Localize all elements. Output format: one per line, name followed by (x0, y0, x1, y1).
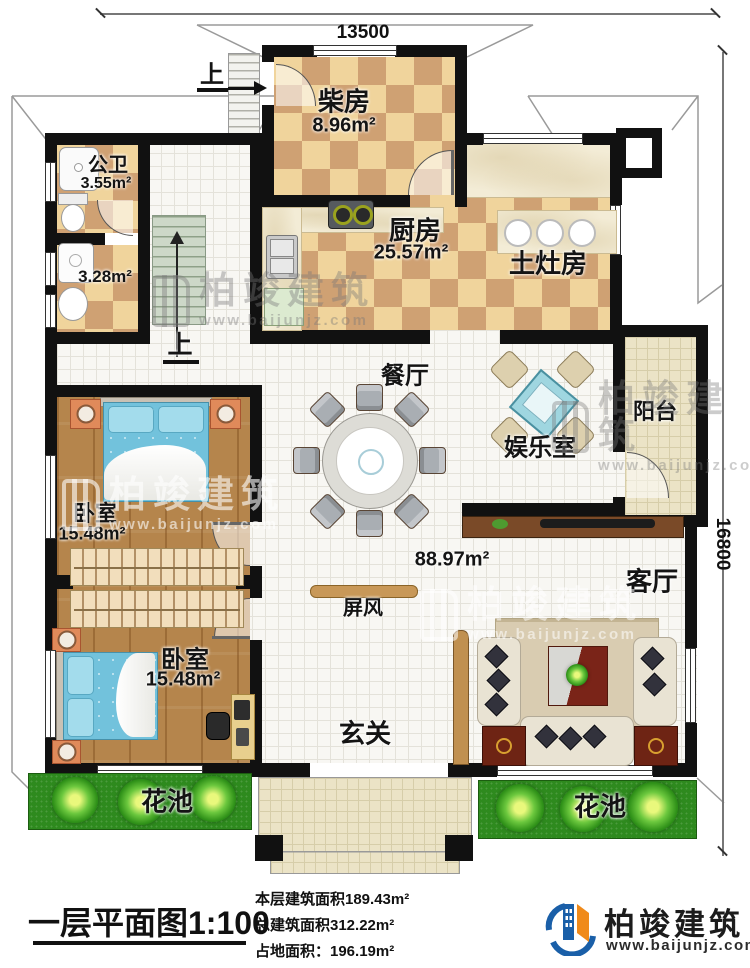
flower-bed-label-left: 花池 (141, 782, 193, 819)
shower-drain-icon (74, 163, 83, 172)
wash-basin (58, 287, 88, 321)
wall-gongwei-right (138, 133, 150, 243)
wall-kitchen-bottom (500, 330, 622, 344)
pillow (108, 406, 154, 433)
living-side-window (685, 648, 696, 723)
side-table (482, 726, 526, 766)
wall-chaifang-left (262, 105, 274, 205)
dining-chair (293, 447, 320, 474)
hall-area-label: 88.97m² (415, 549, 490, 572)
wardrobe (70, 590, 244, 628)
bedroom1-window (45, 455, 56, 539)
room-label-chaifang: 柴房 (318, 82, 370, 119)
wall-tuzaofang-top (455, 133, 483, 145)
wall-balcony-left (613, 325, 625, 452)
plant-icon (190, 776, 236, 822)
room-label-tuzaofang: 土灶房 (509, 244, 587, 281)
bedroom1-door-leaf (212, 522, 250, 525)
chaifang-kitchen-door-leaf (451, 150, 454, 195)
wall-balcony-right (696, 325, 708, 527)
plan-title-underline (33, 941, 246, 945)
foyer-divider (453, 630, 469, 765)
living-window-bottom (497, 765, 653, 776)
room-label-canting: 餐厅 (381, 356, 429, 391)
dining-chair (356, 384, 383, 411)
company-logo-icon (543, 896, 601, 956)
wall-bedroom-divider-stub (45, 575, 73, 589)
company-logo-website: www.baijunjz.com (606, 937, 750, 954)
cabinet-plant-icon (492, 519, 508, 529)
wall-chaifang-top (262, 45, 317, 57)
plant-icon (496, 784, 544, 832)
bedroom2-window (45, 650, 56, 738)
desk-chair (206, 712, 230, 740)
nightstand (52, 628, 81, 652)
wall-foyer-bottom (262, 763, 310, 777)
outdoor-stairs-up-label: 上 (200, 55, 224, 90)
kitchen-sink-basin (270, 239, 294, 257)
room-area-gongwei: 3.55m² (81, 175, 132, 193)
floor-plan: 13500 16800 上 上 (0, 0, 750, 968)
dining-chair (356, 510, 383, 537)
interior-stairs-up-underline (163, 360, 199, 364)
porch-pillar (255, 835, 283, 861)
floor-area-text: 本层建筑面积189.43m² (255, 888, 409, 909)
nightstand (210, 399, 241, 429)
tv (540, 519, 655, 528)
stove-burner-icon (333, 205, 353, 225)
stove-burner-icon (353, 205, 373, 225)
table-plant-icon (566, 664, 588, 686)
wall-bedroom1-right (250, 385, 262, 522)
room-label-gongwei: 公卫 (88, 149, 128, 178)
tuzaofang-window (483, 133, 583, 144)
room-label-xuanguan: 玄关 (339, 714, 391, 751)
outdoor-stairs (228, 53, 260, 137)
wardrobe (70, 548, 244, 586)
washroom-window (45, 252, 56, 286)
direction-arrow-icon (228, 87, 254, 90)
room-area-chufang: 25.57m² (374, 242, 449, 265)
flower-bed-label-right: 花池 (574, 787, 626, 824)
desk-computer-icon (234, 700, 250, 720)
tuzaofang-counter-top (455, 140, 612, 198)
wall-balcony-top (613, 325, 708, 337)
desk-item-icon (236, 728, 249, 746)
side-table (634, 726, 678, 766)
dimension-line-right (722, 52, 724, 856)
dimension-height-label: 16800 (711, 494, 733, 594)
screen-label: 屏风 (343, 592, 383, 621)
washroom-window (45, 294, 56, 328)
porch-pillar (445, 835, 473, 861)
room-label-keting: 客厅 (626, 562, 678, 599)
fridge (264, 288, 304, 326)
wall-kitchen-bottom (250, 330, 430, 344)
interior-stairs-up-label: 上 (167, 325, 192, 361)
nightstand (52, 740, 81, 764)
total-area-text: 总建筑面积312.22m² (255, 914, 394, 935)
lazy-susan-icon (358, 449, 384, 475)
washing-machine-dial-icon (69, 254, 82, 267)
bedroom2-door-leaf (212, 636, 250, 639)
room-label-yangtai: 阳台 (633, 394, 677, 426)
kitchen-sink-basin (270, 258, 294, 274)
direction-arrow-head-icon (254, 81, 267, 95)
dining-chair (419, 447, 446, 474)
pillow (67, 698, 94, 737)
bed-sheet (116, 653, 155, 737)
land-area-text: 占地面积：196.19m² (255, 940, 394, 961)
wall-tuzaofang-right (610, 255, 622, 335)
plant-icon (628, 782, 678, 832)
plant-icon (52, 777, 98, 823)
wall-living-right (685, 723, 697, 777)
wall-top-left-block (45, 133, 262, 145)
wall-chaifang-right (455, 45, 467, 207)
room-area-washroom: 3.28m² (78, 267, 132, 287)
room-area-chaifang: 8.96m² (312, 115, 375, 138)
stairs-arrow-head-icon (170, 231, 184, 244)
chaifang-window (313, 45, 397, 56)
dimension-line-top (100, 13, 716, 15)
toilet-bowl (61, 204, 85, 232)
wall-balcony-left (613, 497, 625, 515)
room-area-bedroom1: 15.48m² (58, 524, 125, 545)
wall-hall-kitchen (250, 133, 262, 330)
outdoor-stairs-up-underline (197, 88, 228, 92)
pillow (158, 406, 204, 433)
room-label-yuleshi: 娱乐室 (504, 428, 576, 463)
wall-bedroom1-top (45, 385, 262, 397)
chimney (616, 128, 662, 178)
porch-step (270, 851, 460, 874)
dimension-width-label: 13500 (327, 22, 399, 44)
room-area-bedroom2: 15.48m² (146, 669, 221, 692)
nightstand (70, 399, 101, 429)
wall-washroom-right (138, 243, 150, 337)
wall-washroom-bottom (45, 332, 150, 344)
gongwei-window (45, 162, 56, 202)
pillow (67, 656, 94, 695)
plan-title: 一层平面图1:100 (28, 898, 270, 944)
entrance-porch (258, 777, 472, 853)
